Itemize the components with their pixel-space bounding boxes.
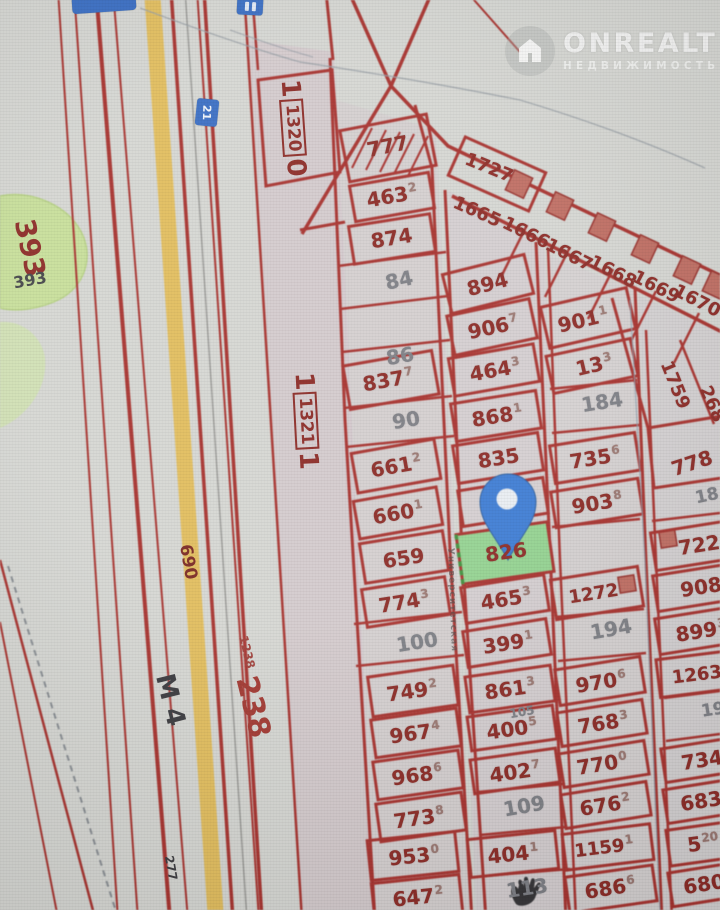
watermark-logo: ONREALT НЕДВИЖИМОСТЬ: [505, 20, 715, 82]
map-canvas[interactable]: 777 4632 874 84 86 8377 90 6612 6601 659…: [0, 0, 720, 910]
plot-number: 6472: [391, 882, 444, 910]
plot-number: 520: [686, 829, 720, 857]
watermark-subtitle: НЕДВИЖИМОСТЬ: [563, 60, 719, 72]
vacant-number: 90: [390, 406, 421, 434]
route-sign: 21: [195, 98, 220, 127]
onrealt-house-icon: [505, 26, 555, 76]
watermark-brand: ONREALT: [563, 30, 719, 57]
road-sign-icon: [237, 0, 264, 16]
roadside-lines: [0, 560, 118, 910]
quarter-label-1321: 1 1321 1: [288, 372, 323, 471]
vacant-number: 19: [700, 698, 720, 721]
